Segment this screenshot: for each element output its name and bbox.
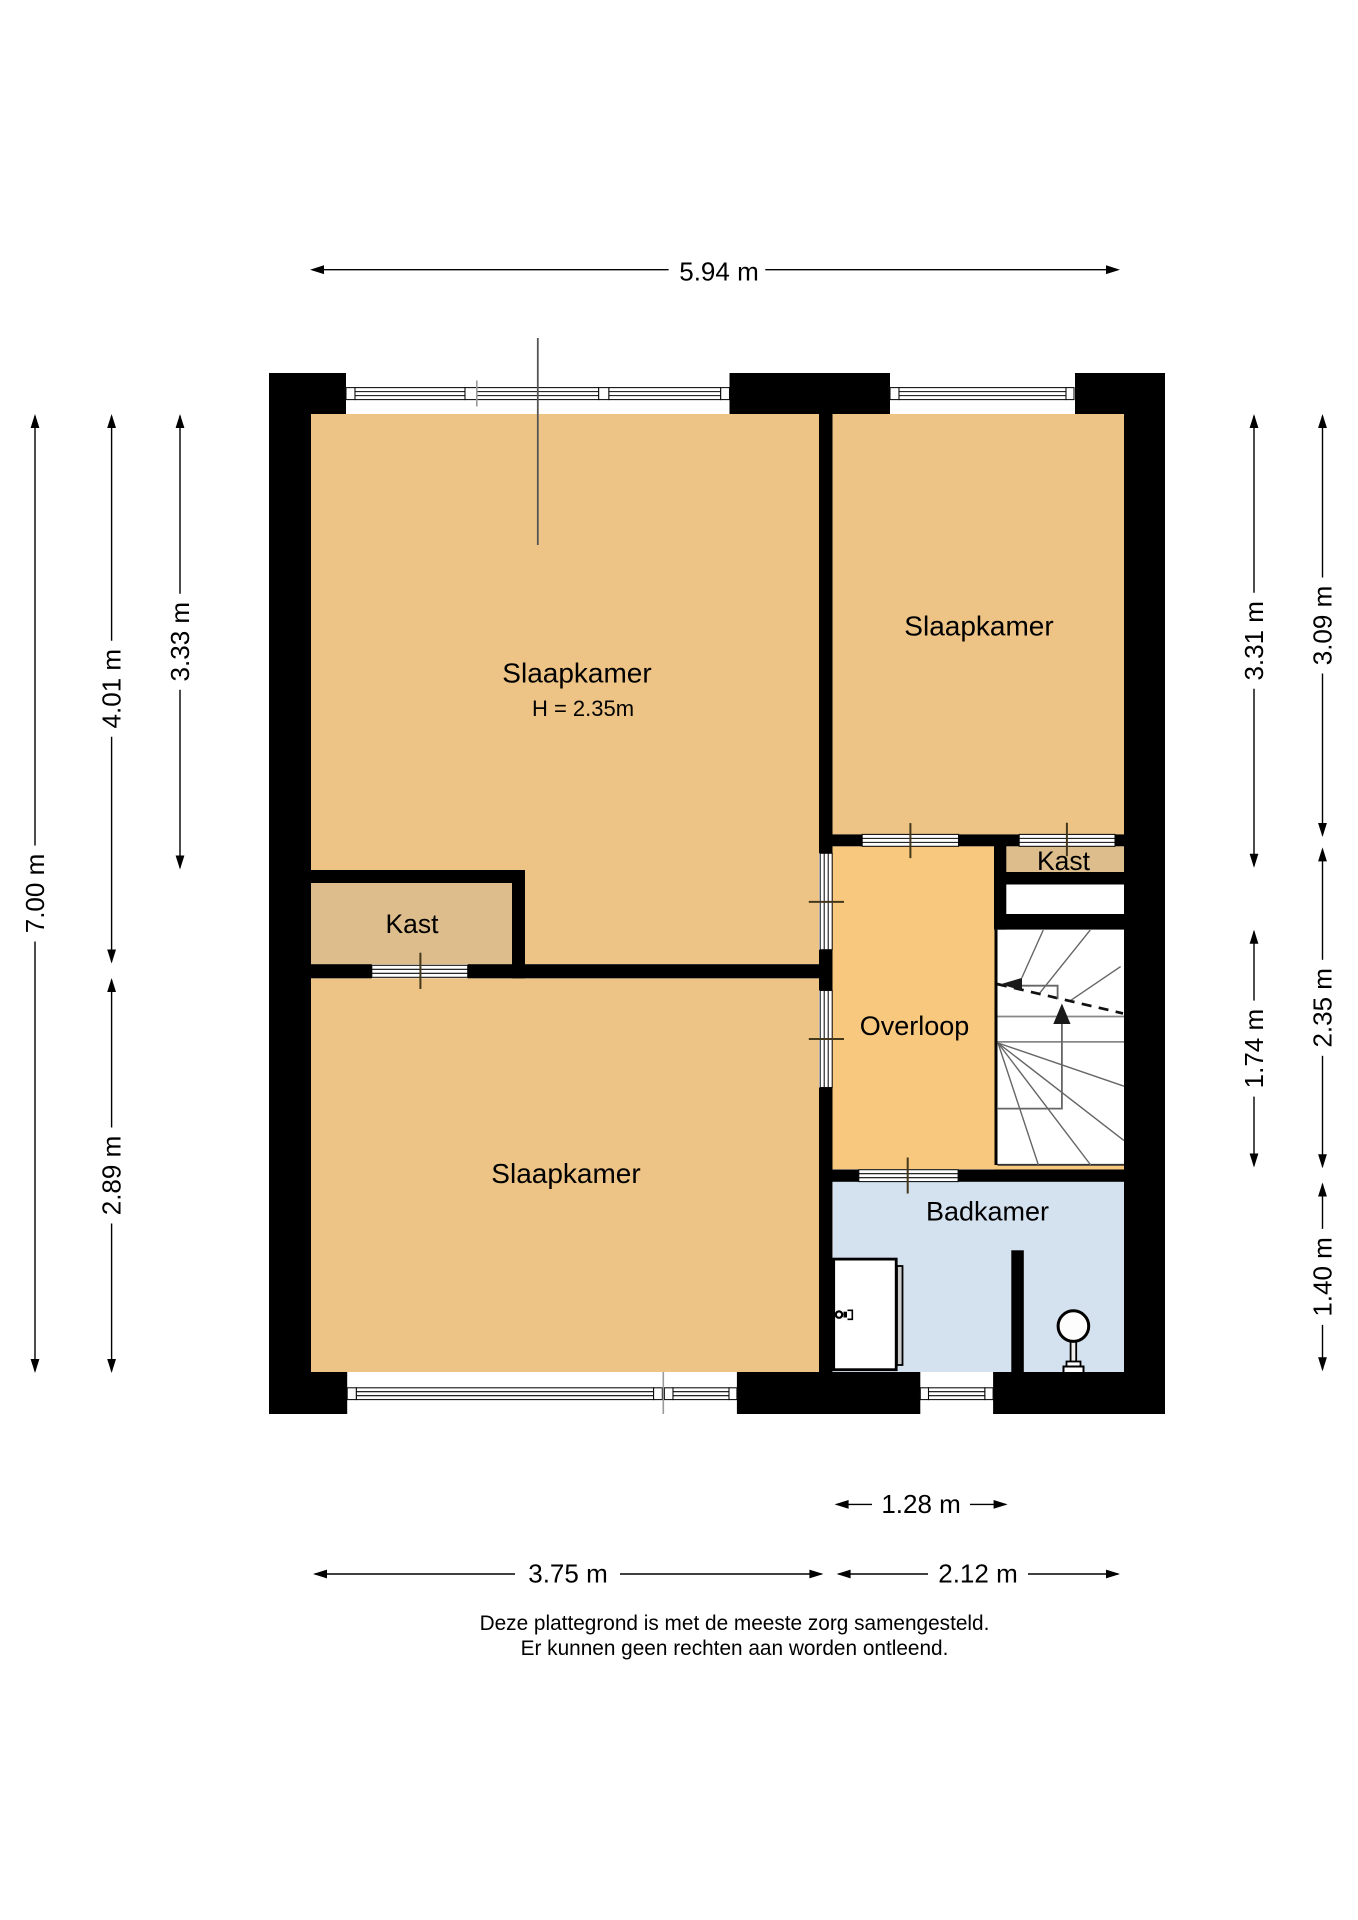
svg-text:2.89 m: 2.89 m [97, 1136, 127, 1216]
svg-text:Kast: Kast [1037, 846, 1091, 876]
svg-text:Kast: Kast [385, 909, 439, 939]
svg-text:Slaapkamer: Slaapkamer [502, 658, 651, 689]
svg-text:1.28 m: 1.28 m [881, 1489, 961, 1519]
svg-text:Deze plattegrond is met de mee: Deze plattegrond is met de meeste zorg s… [480, 1612, 990, 1635]
svg-text:3.75 m: 3.75 m [528, 1559, 608, 1589]
svg-text:Slaapkamer: Slaapkamer [491, 1158, 640, 1189]
svg-text:2.35 m: 2.35 m [1308, 968, 1338, 1048]
svg-text:Er kunnen geen rechten aan wor: Er kunnen geen rechten aan worden ontlee… [521, 1637, 949, 1660]
svg-text:H = 2.35m: H = 2.35m [532, 696, 634, 721]
svg-text:3.33 m: 3.33 m [165, 602, 195, 682]
svg-text:1.74 m: 1.74 m [1239, 1009, 1269, 1089]
svg-text:4.01 m: 4.01 m [97, 649, 127, 729]
svg-text:Badkamer: Badkamer [926, 1197, 1049, 1227]
svg-text:Slaapkamer: Slaapkamer [904, 611, 1053, 642]
svg-text:2.12 m: 2.12 m [938, 1559, 1018, 1589]
svg-text:3.31 m: 3.31 m [1239, 601, 1269, 681]
svg-text:Overloop: Overloop [860, 1011, 970, 1041]
svg-text:1.40 m: 1.40 m [1308, 1237, 1338, 1317]
svg-text:7.00 m: 7.00 m [20, 854, 50, 934]
svg-text:5.94 m: 5.94 m [679, 257, 759, 287]
svg-text:3.09 m: 3.09 m [1308, 586, 1338, 666]
